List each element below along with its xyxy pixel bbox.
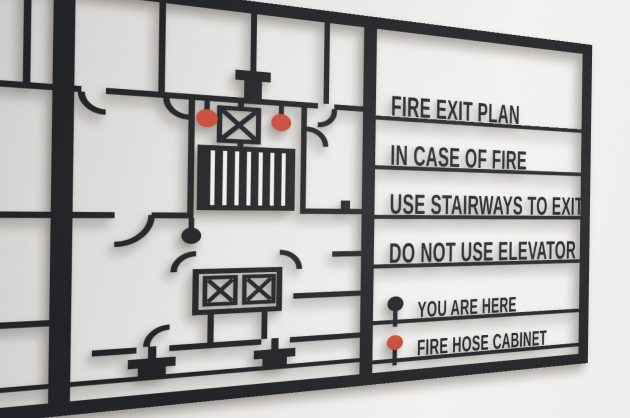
pin-stem bbox=[393, 309, 398, 326]
plan-walls bbox=[0, 0, 364, 415]
pin-stem bbox=[392, 348, 397, 365]
stair-tread-slit bbox=[270, 153, 275, 206]
fire-hose-pin-icon bbox=[196, 109, 218, 128]
wall-segment bbox=[261, 309, 267, 339]
sign-message-1: FIRE EXIT PLAN bbox=[391, 89, 520, 130]
wall-segment bbox=[106, 88, 318, 109]
wall-segment bbox=[300, 107, 307, 213]
wall-segment bbox=[0, 211, 51, 218]
wall-segment bbox=[293, 290, 360, 298]
you-are-here-pin-icon bbox=[387, 296, 403, 312]
wall-segment bbox=[92, 348, 137, 357]
wall-segment bbox=[290, 332, 360, 342]
frame-bottom bbox=[0, 353, 588, 418]
wall-segment bbox=[48, 0, 76, 403]
fire-hose-pin-plan-1 bbox=[196, 100, 218, 128]
fire-exit-plan-sign: FIRE EXIT PLAN IN CASE OF FIRE USE STAIR… bbox=[0, 0, 592, 418]
fire-hose-pin-icon bbox=[271, 113, 291, 131]
stair-tread-slit bbox=[281, 153, 286, 206]
pin-stem bbox=[204, 100, 210, 111]
door-swing-arc bbox=[307, 129, 326, 147]
sign-text-column: FIRE EXIT PLAN IN CASE OF FIRE USE STAIR… bbox=[372, 88, 585, 368]
wall-segment bbox=[152, 212, 191, 218]
wall-segment bbox=[0, 320, 49, 333]
floor-plan bbox=[0, 0, 364, 415]
stairwell bbox=[197, 145, 296, 211]
pin-stem bbox=[279, 105, 284, 115]
elevator-symbol bbox=[205, 277, 236, 305]
door-swing-arc bbox=[174, 254, 196, 273]
stair-exit-symbol bbox=[219, 108, 258, 143]
photo-of-fire-exit-sign: FIRE EXIT PLAN IN CASE OF FIRE USE STAIR… bbox=[0, 0, 630, 418]
door-jamb bbox=[271, 338, 278, 350]
you-are-here-pin-icon bbox=[181, 228, 201, 244]
door-jamb bbox=[254, 348, 296, 360]
pin-stem bbox=[189, 218, 195, 228]
wall-segment bbox=[324, 22, 331, 104]
stair-tread-slit bbox=[222, 151, 227, 205]
door-swing-arc bbox=[146, 327, 169, 347]
wall-segment bbox=[158, 2, 166, 92]
elevator-symbol bbox=[244, 276, 274, 303]
stair-tread-slit bbox=[258, 152, 263, 205]
door-jamb bbox=[244, 80, 262, 99]
wall-segment bbox=[300, 208, 362, 214]
door-jamb bbox=[128, 357, 176, 370]
fire-hose-pin-icon bbox=[387, 335, 403, 351]
you-are-here-pin-plan bbox=[181, 218, 201, 244]
door-swing-arc bbox=[81, 92, 106, 113]
stair-tread-slit bbox=[210, 150, 215, 205]
wall-segment bbox=[169, 339, 261, 351]
elevator-room bbox=[195, 269, 279, 312]
stair-tread-slit bbox=[234, 151, 239, 205]
door-jamb bbox=[235, 70, 270, 83]
wall-segment bbox=[23, 0, 32, 82]
door-swing-arc bbox=[318, 108, 335, 126]
wall-segment bbox=[72, 212, 114, 218]
wall-segment bbox=[332, 251, 361, 257]
fire-hose-pin-plan-2 bbox=[271, 105, 291, 132]
legend-label-you-are-here: YOU ARE HERE bbox=[417, 292, 516, 322]
wall-segment bbox=[207, 312, 214, 343]
door-swing-arc bbox=[280, 252, 300, 269]
legend-label-fire-hose-cabinet: FIRE HOSE CABINET bbox=[417, 326, 547, 361]
sign-message-3: USE STAIRWAYS TO EXIT bbox=[389, 188, 583, 221]
door-jamb bbox=[148, 346, 156, 358]
stair-tread-slit bbox=[246, 152, 251, 206]
frame-top bbox=[0, 0, 592, 55]
sign-plate: FIRE EXIT PLAN IN CASE OF FIRE USE STAIR… bbox=[0, 0, 592, 418]
door-jamb bbox=[250, 14, 257, 72]
wall-segment bbox=[334, 104, 363, 111]
door-swing-arc bbox=[114, 215, 151, 245]
door-jamb bbox=[341, 201, 350, 209]
sign-message-4: DO NOT USE ELEVATOR bbox=[389, 235, 576, 269]
sign-message-2: IN CASE OF FIRE bbox=[390, 138, 527, 175]
door-swing-arc bbox=[166, 97, 189, 117]
